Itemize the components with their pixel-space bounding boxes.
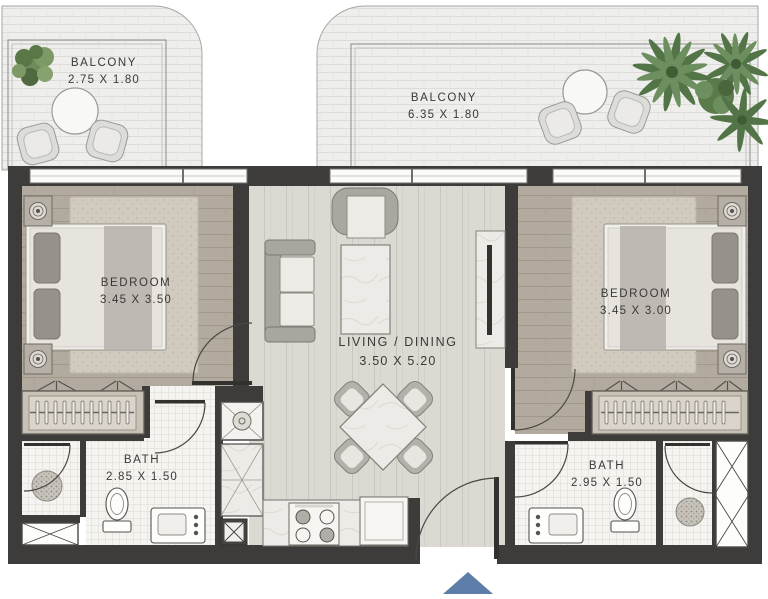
entrance-arrow-icon — [443, 572, 493, 594]
balcony-main-dims: 6.35 X 1.80 — [364, 107, 524, 124]
washer — [221, 402, 263, 440]
vestibule-right-floor — [515, 386, 585, 434]
nightstand — [718, 196, 746, 226]
sink-cabinet — [360, 497, 408, 545]
shower-right-floor — [663, 441, 712, 547]
shaft-right — [716, 441, 748, 547]
balcony-left-label: BALCONY 2.75 X 1.80 — [24, 55, 184, 90]
bath-left-label: BATH 2.85 X 1.50 — [62, 452, 222, 487]
shower-drain — [32, 471, 62, 501]
vanity-sink — [529, 508, 583, 543]
tall-cabinet — [221, 444, 263, 516]
bath-right-name: BATH — [527, 458, 687, 475]
wardrobe-left — [22, 391, 144, 434]
tv-icon — [487, 245, 492, 335]
bedroom-right-label: BEDROOM 3.45 X 3.00 — [556, 286, 716, 321]
balcony-left-dims: 2.75 X 1.80 — [24, 72, 184, 89]
bedroom-left-name: BEDROOM — [56, 275, 216, 292]
wardrobe-right — [592, 391, 748, 434]
bedroom-right-name: BEDROOM — [556, 286, 716, 303]
stove — [289, 503, 339, 545]
bedroom-left-label: BEDROOM 3.45 X 3.50 — [56, 275, 216, 310]
nightstand — [24, 344, 52, 374]
bath-right-label: BATH 2.95 X 1.50 — [527, 458, 687, 493]
window-living — [330, 169, 527, 183]
living-dims: 3.50 X 5.20 — [308, 352, 488, 371]
tv-unit — [476, 231, 505, 348]
floor-plan: BALCONY 2.75 X 1.80 BALCONY 6.35 X 1.80 … — [0, 0, 768, 599]
bath-right-dims: 2.95 X 1.50 — [527, 475, 687, 492]
coffee-table — [341, 245, 390, 334]
balcony-left-name: BALCONY — [24, 55, 184, 72]
duct-box-left — [22, 523, 78, 545]
sofa — [265, 240, 315, 342]
armchair — [332, 188, 398, 238]
balcony-main-name: BALCONY — [364, 90, 524, 107]
pillow — [712, 233, 738, 283]
bath-left-name: BATH — [62, 452, 222, 469]
shower-drain — [676, 498, 704, 526]
nightstand — [24, 196, 52, 226]
window-bedroom-right — [553, 169, 741, 183]
vanity-sink — [151, 508, 205, 543]
living-label: LIVING / DINING 3.50 X 5.20 — [308, 333, 488, 371]
bedroom-right-dims: 3.45 X 3.00 — [556, 303, 716, 320]
balcony-main-label: BALCONY 6.35 X 1.80 — [364, 90, 524, 125]
balcony-main — [317, 6, 768, 170]
nightstand — [718, 344, 746, 374]
bath-left-dims: 2.85 X 1.50 — [62, 469, 222, 486]
duct-box — [221, 519, 247, 545]
living-name: LIVING / DINING — [308, 333, 488, 352]
window-bedroom-left — [30, 169, 247, 183]
dining-set — [331, 378, 436, 477]
bedroom-left-dims: 3.45 X 3.50 — [56, 292, 216, 309]
windows — [30, 169, 741, 183]
